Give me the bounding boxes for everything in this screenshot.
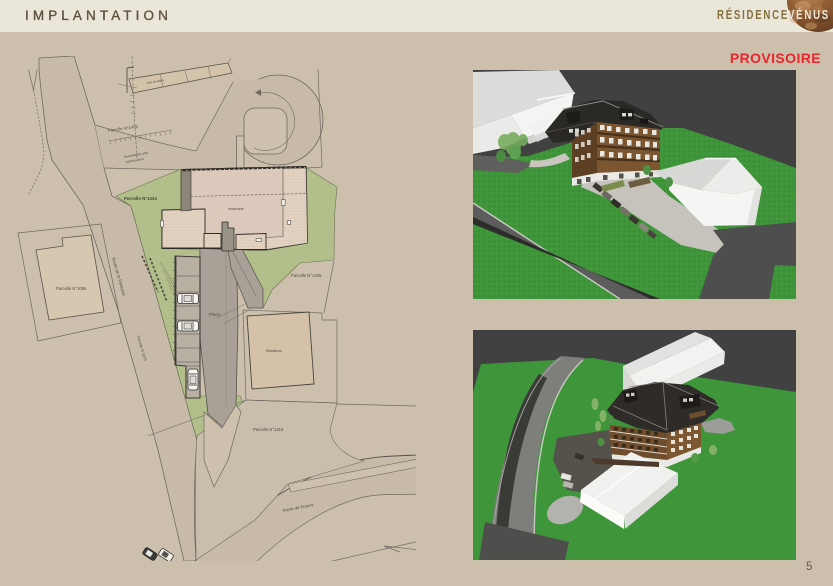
svg-text:Place: Place [209,312,221,317]
svg-text:Parcelle N°1434: Parcelle N°1434 [124,196,157,201]
svg-text:Résidence: Résidence [266,349,282,353]
svg-text:Parcelle N°1432: Parcelle N°1432 [107,124,138,133]
svg-text:immeuble: immeuble [228,207,244,211]
svg-text:Parcelle N°1435: Parcelle N°1435 [291,273,322,278]
svg-text:Parcelle N°1055: Parcelle N°1055 [56,286,87,291]
svg-text:Parcelle N°1415: Parcelle N°1415 [253,427,284,432]
